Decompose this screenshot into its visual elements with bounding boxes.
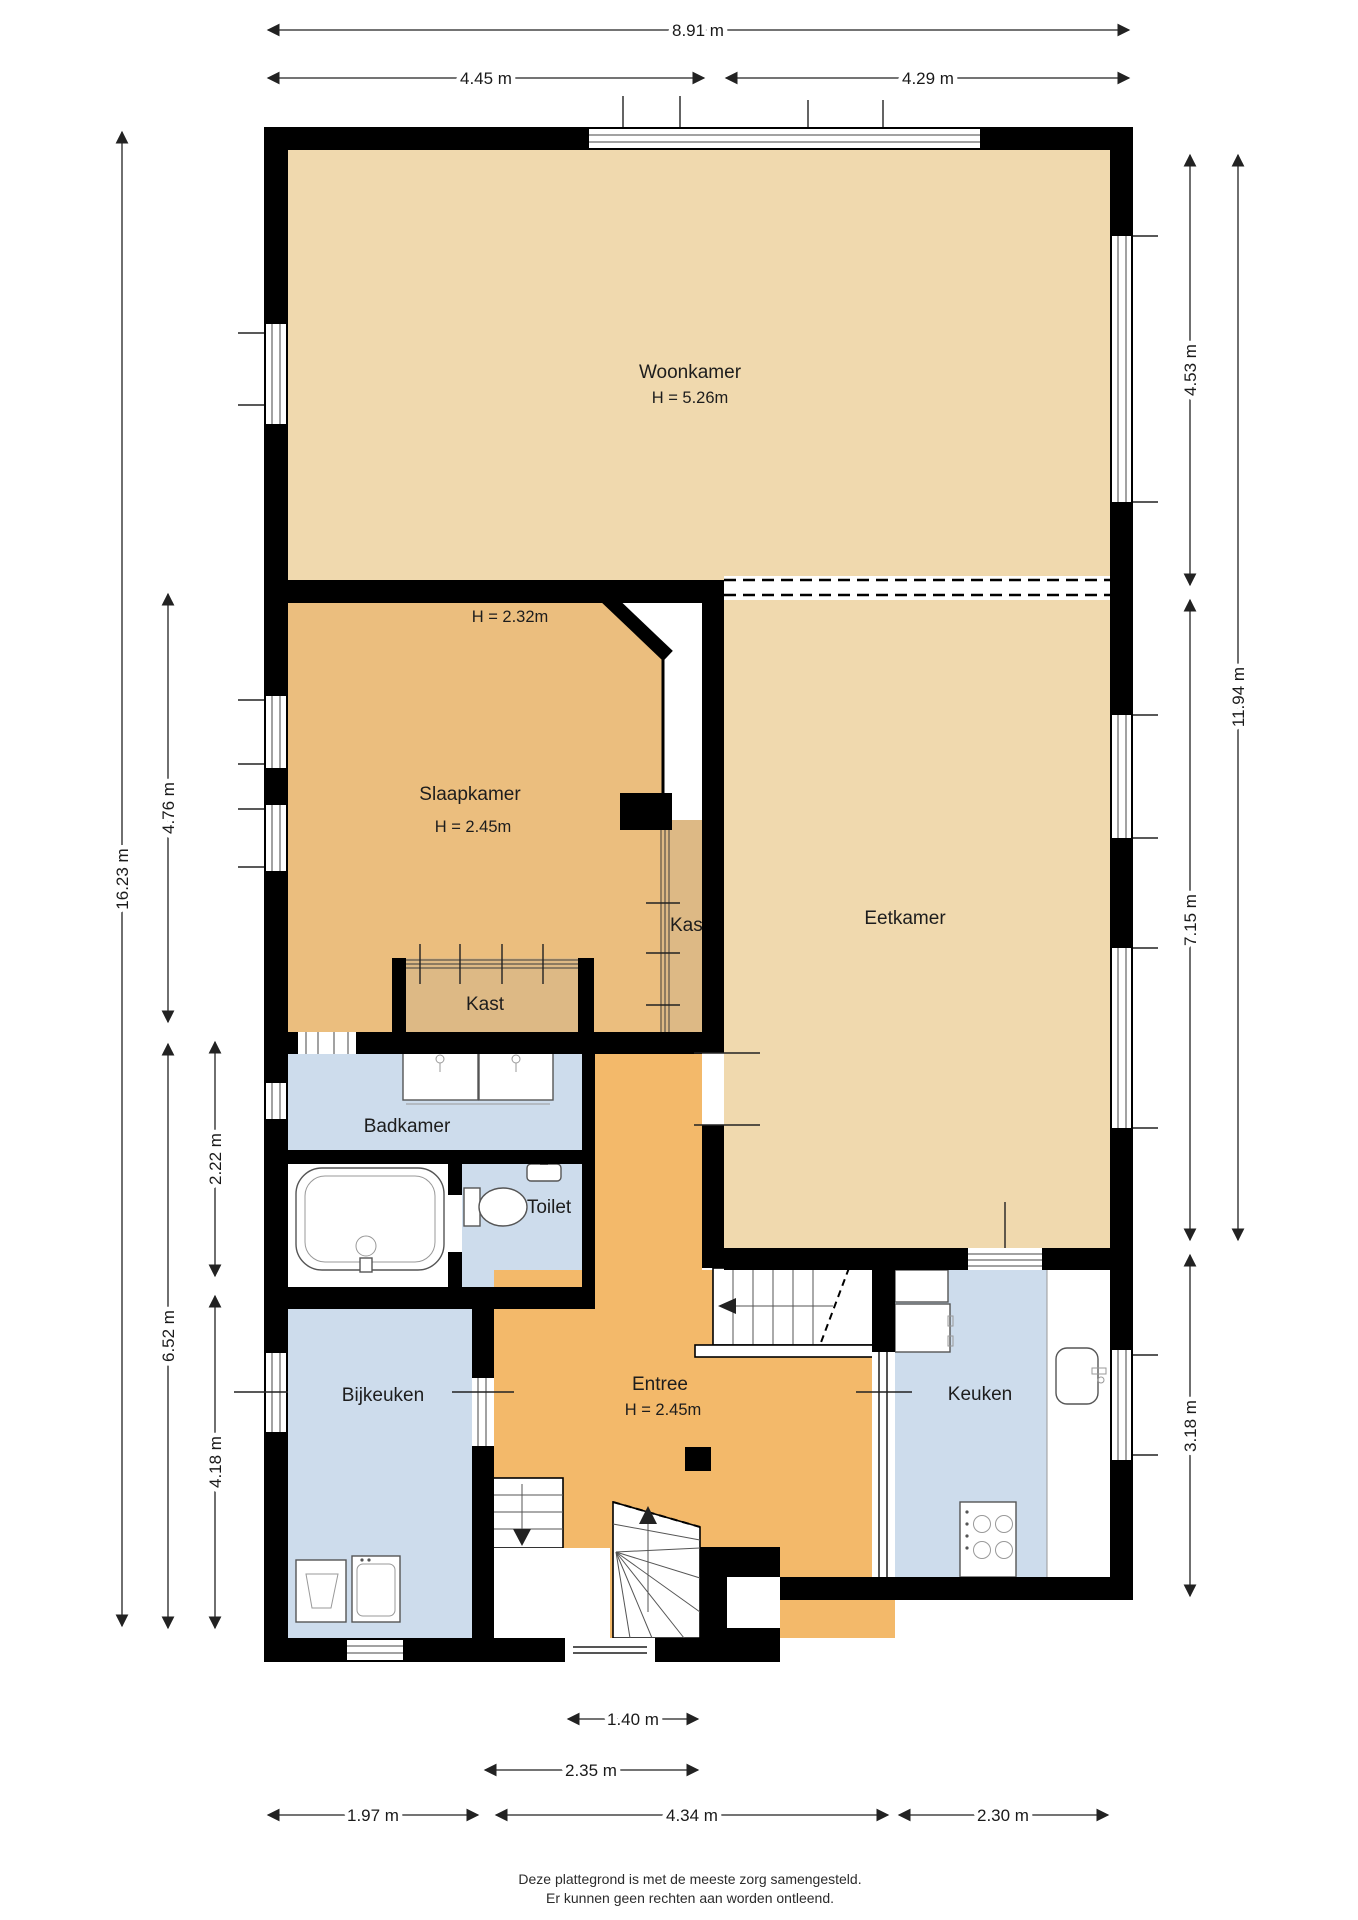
entree-label: Entree (632, 1374, 688, 1395)
staircase-winder (613, 1502, 700, 1638)
dim-bottom-voordeur: 1.40 m (607, 1710, 659, 1729)
floorplan-drawing: Kast (0, 0, 1358, 1920)
toilet-sink (527, 1164, 561, 1181)
eetkamer-label: Eetkamer (864, 908, 946, 929)
toilet-fixture (464, 1188, 527, 1226)
door-badkamer (298, 1032, 356, 1054)
wall-bijkeuken-east (472, 1287, 494, 1638)
woonkamer-height-label: H = 5.26m (652, 389, 729, 407)
footer-line-1: Deze plattegrond is met de meeste zorg s… (518, 1871, 861, 1887)
window-west-woonkamer (238, 324, 286, 424)
kitchen-cabinets (895, 1270, 953, 1352)
dim-top-left: 4.45 m (460, 69, 512, 88)
dim-top-right: 4.29 m (902, 69, 954, 88)
back-door-recess (727, 1577, 780, 1628)
vestibule (482, 1548, 610, 1638)
window-west-slaapkamer-1 (238, 696, 286, 768)
wall-eetkamer-west (702, 580, 724, 1268)
utility-sink (296, 1560, 346, 1622)
wall-bijkeuken-north (264, 1287, 595, 1309)
wall-eetkamer-south (724, 1248, 1133, 1270)
badkamer-label: Badkamer (364, 1116, 451, 1137)
room-entree-corridor (595, 1054, 702, 1287)
open-connection (724, 576, 1110, 600)
wall-south-kitchen (780, 1577, 1133, 1600)
dim-left-total: 16.23 m (113, 848, 132, 909)
bathtub (296, 1168, 444, 1272)
dim-bottom-entree: 4.34 m (666, 1806, 718, 1825)
wall-badkamer-east (582, 1032, 595, 1287)
dim-top-total: 8.91 m (672, 21, 724, 40)
door-toilet (448, 1195, 462, 1252)
dim-right-total: 11.94 m (1229, 667, 1248, 727)
wall-woonkamer-south (264, 580, 724, 603)
slaapkamer-label: Slaapkamer (419, 784, 521, 805)
window-east-eetkamer-1 (1112, 715, 1158, 838)
window-east-keuken (1112, 1350, 1158, 1460)
dim-bottom-keuken: 2.30 m (977, 1806, 1029, 1825)
window-north-1 (589, 96, 808, 148)
wall-keuken-west (872, 1270, 895, 1352)
dim-left-badkamer: 2.22 m (206, 1133, 225, 1185)
kast-closet-label: Kast (466, 994, 505, 1015)
slaapkamer-ceiling-label: H = 2.32m (472, 608, 549, 626)
wall-bath-niche (288, 1150, 448, 1164)
wall-toilet-north (448, 1150, 582, 1164)
window-west-badkamer (266, 1083, 286, 1119)
floorplan-page: Kast (0, 0, 1358, 1920)
window-south-bijkeuken (347, 1640, 403, 1660)
dim-right-eetkamer: 7.15 m (1181, 894, 1200, 946)
stove (960, 1502, 1016, 1577)
closet-wall-left (392, 958, 406, 1042)
closet-wall-right (578, 958, 594, 1042)
kitchen-counter (1047, 1270, 1110, 1577)
entree-height-label: H = 2.45m (625, 1401, 702, 1419)
staircase-up-main (695, 1268, 878, 1357)
window-west-slaapkamer-2 (238, 805, 286, 871)
window-east-woonkamer (1112, 236, 1158, 502)
keuken-label: Keuken (948, 1384, 1012, 1405)
front-door (565, 1638, 655, 1662)
dim-right-keuken: 3.18 m (1181, 1400, 1200, 1452)
footer-line-2: Er kunnen geen rechten aan worden ontlee… (546, 1890, 834, 1906)
window-east-eetkamer-2 (1112, 948, 1158, 1128)
window-north-2 (808, 100, 980, 148)
dim-left-slaapkamer: 4.76 m (159, 782, 178, 834)
window-west-bijkeuken (234, 1353, 288, 1432)
dim-left-lower: 6.52 m (159, 1310, 178, 1362)
dim-right-woonkamer: 4.53 m (1181, 344, 1200, 396)
dim-bottom-portaal: 2.35 m (565, 1761, 617, 1780)
woonkamer-label: Woonkamer (639, 362, 742, 383)
dim-left-bijkeuken: 4.18 m (206, 1436, 225, 1488)
slaapkamer-height-label: H = 2.45m (435, 818, 512, 836)
footer-disclaimer: Deze plattegrond is met de meeste zorg s… (518, 1871, 861, 1906)
bijkeuken-label: Bijkeuken (342, 1385, 424, 1406)
wall-niche-block (620, 793, 672, 830)
column (685, 1447, 711, 1471)
dim-bottom-bijkeuken: 1.97 m (347, 1806, 399, 1825)
washing-machine (352, 1556, 400, 1622)
staircase-down (482, 1478, 563, 1548)
toilet-label: Toilet (527, 1197, 572, 1218)
